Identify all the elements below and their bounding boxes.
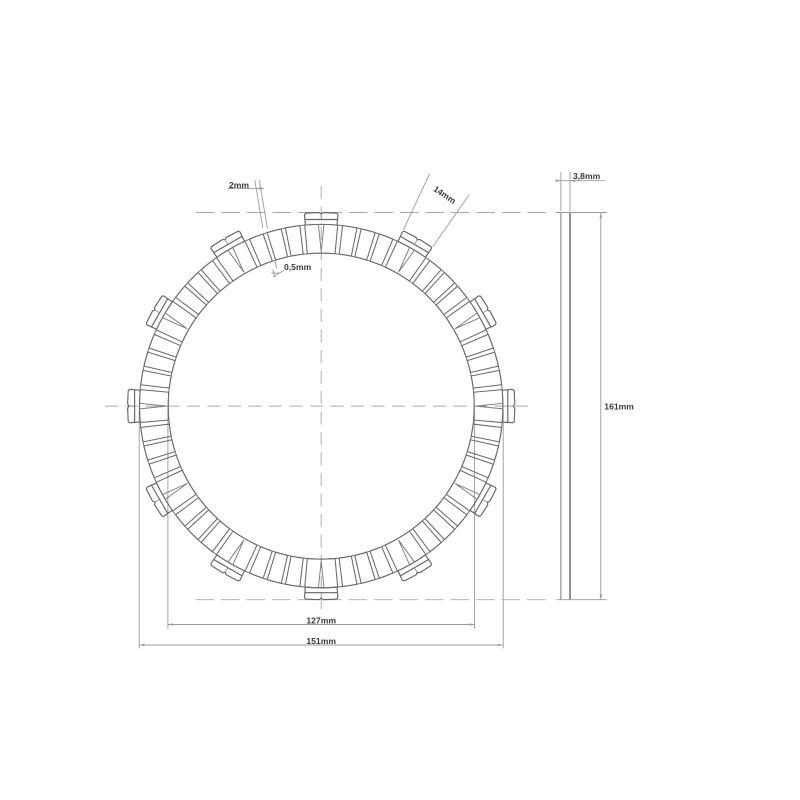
svg-text:2mm: 2mm bbox=[229, 180, 249, 190]
svg-text:161mm: 161mm bbox=[604, 402, 634, 412]
svg-text:0,5mm: 0,5mm bbox=[284, 262, 312, 272]
svg-text:14mm: 14mm bbox=[432, 184, 458, 206]
svg-text:151mm: 151mm bbox=[306, 636, 336, 646]
svg-text:3,8mm: 3,8mm bbox=[573, 171, 601, 181]
svg-text:127mm: 127mm bbox=[306, 615, 336, 625]
